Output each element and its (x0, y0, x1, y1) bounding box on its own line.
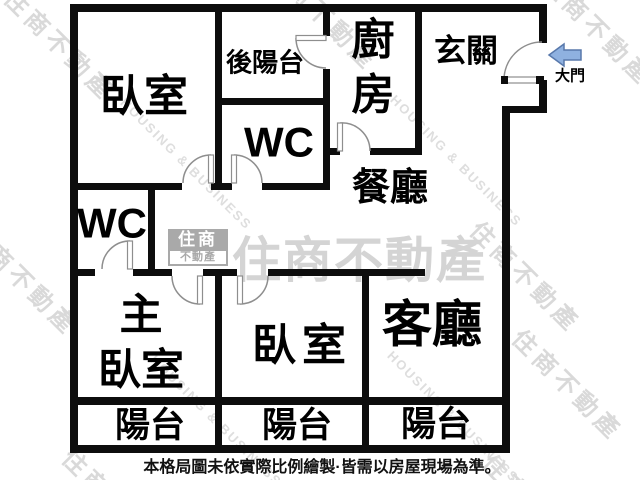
room-label-wc-upper: WC (244, 115, 314, 168)
main-door-label: 大門 (555, 65, 585, 86)
door-leaf (296, 36, 326, 41)
room-label-living: 客廳 (382, 293, 482, 357)
room-label-balcony-right: 陽台 (401, 403, 471, 447)
entry-arrow-icon (549, 44, 581, 66)
room-label-wc-lower: WC (77, 196, 147, 249)
door-leaf (338, 123, 343, 151)
door-leaf (209, 155, 214, 183)
floor-plan: 住商不動產 住商不動產 住商不動產 住商不動產 住商不動產 住商不動產 住商不動… (0, 0, 640, 480)
room-label-master-bedroom: 主 臥室 (98, 288, 184, 397)
door-arc (183, 155, 211, 183)
door-hinge-block (536, 76, 544, 84)
room-label-rear-balcony: 後陽台 (226, 46, 304, 79)
door-hinge-block (501, 76, 508, 84)
room-label-balcony-left: 陽台 (115, 404, 185, 448)
door-leaf (238, 276, 243, 304)
room-label-kitchen: 廚 房 (352, 13, 395, 122)
door-leaf (198, 276, 203, 304)
door-leaf (232, 155, 237, 183)
disclaimer-text: 本格局圖未依實際比例繪製·皆需以房屋現場為準。 (143, 453, 500, 477)
room-label-bedroom-top: 臥室 (100, 69, 188, 125)
door-arc (240, 276, 268, 304)
room-label-bedroom-mid: 臥室 (252, 318, 352, 374)
door-arc (504, 42, 542, 80)
room-label-entry: 玄關 (434, 31, 498, 72)
room-label-balcony-mid: 陽台 (262, 404, 332, 448)
room-label-dining: 餐廳 (352, 164, 428, 212)
door-arc (340, 123, 370, 151)
